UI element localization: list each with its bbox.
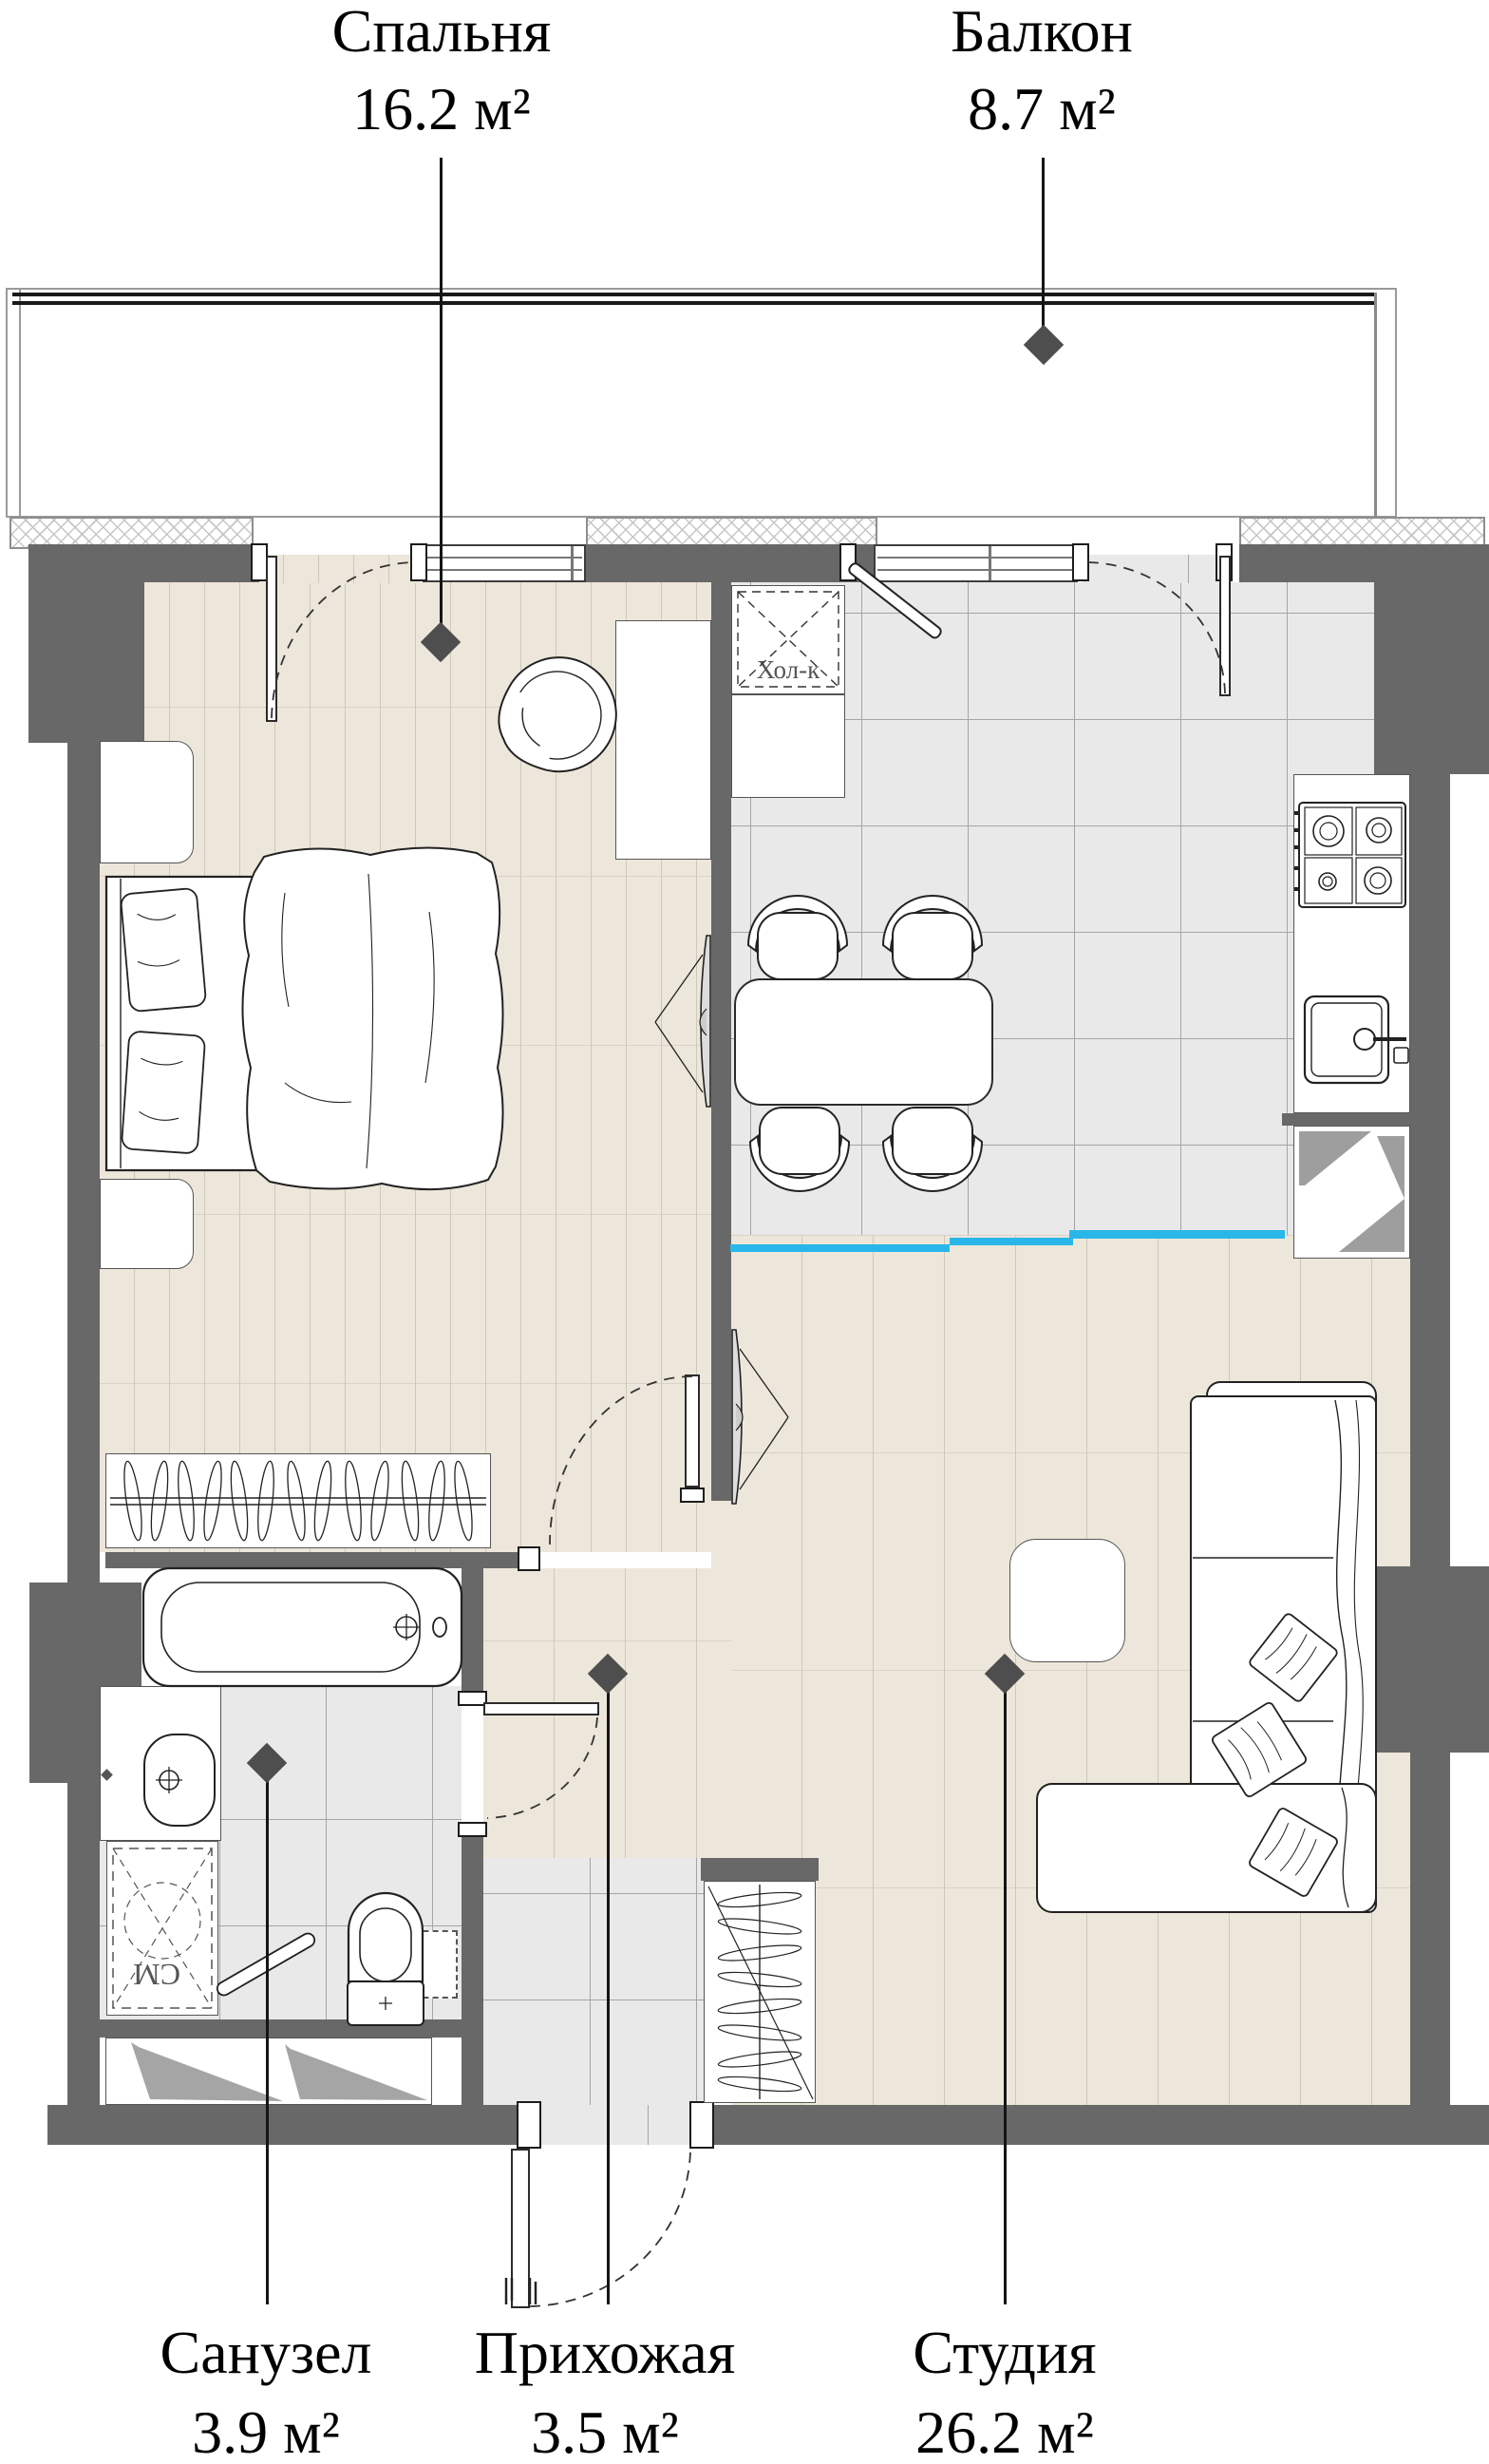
bedroom-label-name: Спальня	[332, 0, 552, 63]
fridge-icon	[738, 592, 839, 687]
toilet	[348, 1893, 424, 2025]
bathroom-leader-line	[266, 1765, 269, 2304]
balcony-label-area: 8.7 м²	[968, 78, 1116, 141]
bed-pillow-bottom	[122, 1031, 205, 1153]
bathroom-label-name: Санузел	[160, 2322, 372, 2384]
hallway-leader-line	[607, 1676, 610, 2304]
hallway-label-area: 3.5 м²	[531, 2401, 679, 2464]
plan-lineart: СМ	[0, 0, 1489, 2464]
dining-chair-1	[748, 896, 847, 979]
balcony-leader-line	[1042, 158, 1045, 342]
egg-chair	[481, 639, 634, 791]
vanity-basin	[144, 1734, 215, 1826]
floor-plan: Хол-к	[0, 0, 1489, 2464]
entrance-door-arc	[530, 2151, 690, 2306]
tv-studio	[732, 1330, 788, 1504]
closet-hangers	[708, 1885, 813, 2099]
sink-icon	[1305, 996, 1408, 1083]
kitchen-open-casement	[847, 561, 942, 639]
dining-chair-4	[883, 1108, 982, 1191]
wardrobe-hangers	[110, 1460, 486, 1541]
dining-chair-3	[750, 1108, 849, 1191]
bedroom-label-area: 16.2 м²	[352, 78, 531, 141]
mirror-cabinet-panels	[1299, 1131, 1404, 1252]
tv-bedroom	[655, 936, 710, 1107]
studio-label-area: 26.2 м²	[915, 2401, 1094, 2464]
washer-label: СМ	[133, 1958, 180, 1992]
bedroom-balcony-door-arc	[272, 562, 414, 718]
hallway-label-name: Прихожая	[475, 2322, 736, 2384]
studio-label-name: Студия	[913, 2322, 1096, 2384]
kitchen-balcony-door-arc	[1088, 562, 1225, 693]
balcony-label-name: Балкон	[951, 0, 1133, 63]
bathroom-door-arc	[487, 1717, 597, 1818]
bed	[106, 847, 503, 1189]
bathroom-label-area: 3.9 м²	[192, 2401, 340, 2464]
bedroom-door-arc	[550, 1376, 692, 1545]
bedroom-leader-line	[440, 158, 443, 637]
sofa	[1037, 1382, 1376, 1912]
niche-panels	[131, 2042, 427, 2101]
bathtub	[143, 1568, 462, 1686]
studio-leader-line	[1004, 1676, 1007, 2304]
entrance-door-handle	[506, 2278, 536, 2304]
dining-chair-2	[883, 896, 982, 979]
bed-pillow-top	[121, 888, 207, 1013]
stove-icon	[1294, 803, 1405, 907]
